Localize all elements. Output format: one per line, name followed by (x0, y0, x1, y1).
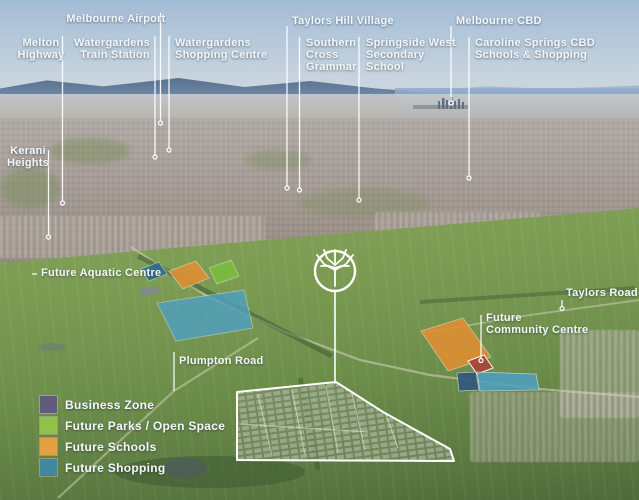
label-melbourne-airport: Melbourne Airport (60, 13, 172, 25)
legend-swatch-business-zone (40, 396, 57, 413)
pond (139, 286, 162, 297)
label-watergardens-shopping-centre: Watergardens Shopping Centre (175, 37, 267, 61)
label-plumpton-road: Plumpton Road (179, 355, 264, 367)
legend-label: Future Parks / Open Space (65, 419, 225, 433)
legend-label: Future Schools (65, 440, 157, 454)
estate-lots (237, 382, 454, 461)
zone-future-shopping-large[interactable] (157, 290, 253, 341)
legend-swatch-future-schools (40, 438, 57, 455)
label-taylors-hill-village: Taylors Hill Village (292, 15, 394, 27)
aerial-masterplan-map: Melbourne Airport Melton Highway Waterga… (0, 0, 639, 500)
zone-future-parks-left[interactable] (209, 260, 239, 284)
label-watergardens-train-station: Watergardens Train Station (70, 37, 150, 61)
leader-lines (32, 13, 562, 391)
label-future-aquatic-centre: Future Aquatic Centre (41, 267, 161, 279)
label-southern-cross-grammar: Southern Cross Grammar (306, 37, 357, 73)
label-kerani-heights: Kerani Heights (6, 145, 50, 169)
lake (163, 458, 207, 478)
label-taylors-road: Taylors Road (566, 287, 638, 299)
zone-future-shopping-right[interactable] (477, 372, 539, 391)
cbd-skyline (413, 97, 468, 109)
label-caroline-springs-cbd: Caroline Springs CBD Schools & Shopping (475, 37, 595, 61)
label-melton-highway: Melton Highway (11, 37, 71, 61)
legend-swatch-future-shopping (40, 459, 57, 476)
estate-masterplan[interactable] (237, 382, 454, 461)
tree-logo-icon (315, 250, 355, 383)
zone-future-schools-left[interactable] (169, 261, 209, 289)
pond (38, 343, 66, 351)
label-springside-west-secondary-school: Springside West Secondary School (366, 37, 456, 73)
legend-item-future-parks: Future Parks / Open Space (40, 417, 225, 434)
legend-label: Future Shopping (65, 461, 165, 475)
legend-swatch-future-parks (40, 417, 57, 434)
legend-item-business-zone: Business Zone (40, 396, 154, 413)
zone-business-right[interactable] (457, 372, 479, 391)
legend-item-future-shopping: Future Shopping (40, 459, 165, 476)
label-future-community-centre: Future Community Centre (486, 312, 588, 336)
legend-label: Business Zone (65, 398, 154, 412)
label-melbourne-cbd: Melbourne CBD (456, 15, 542, 27)
legend-item-future-schools: Future Schools (40, 438, 157, 455)
